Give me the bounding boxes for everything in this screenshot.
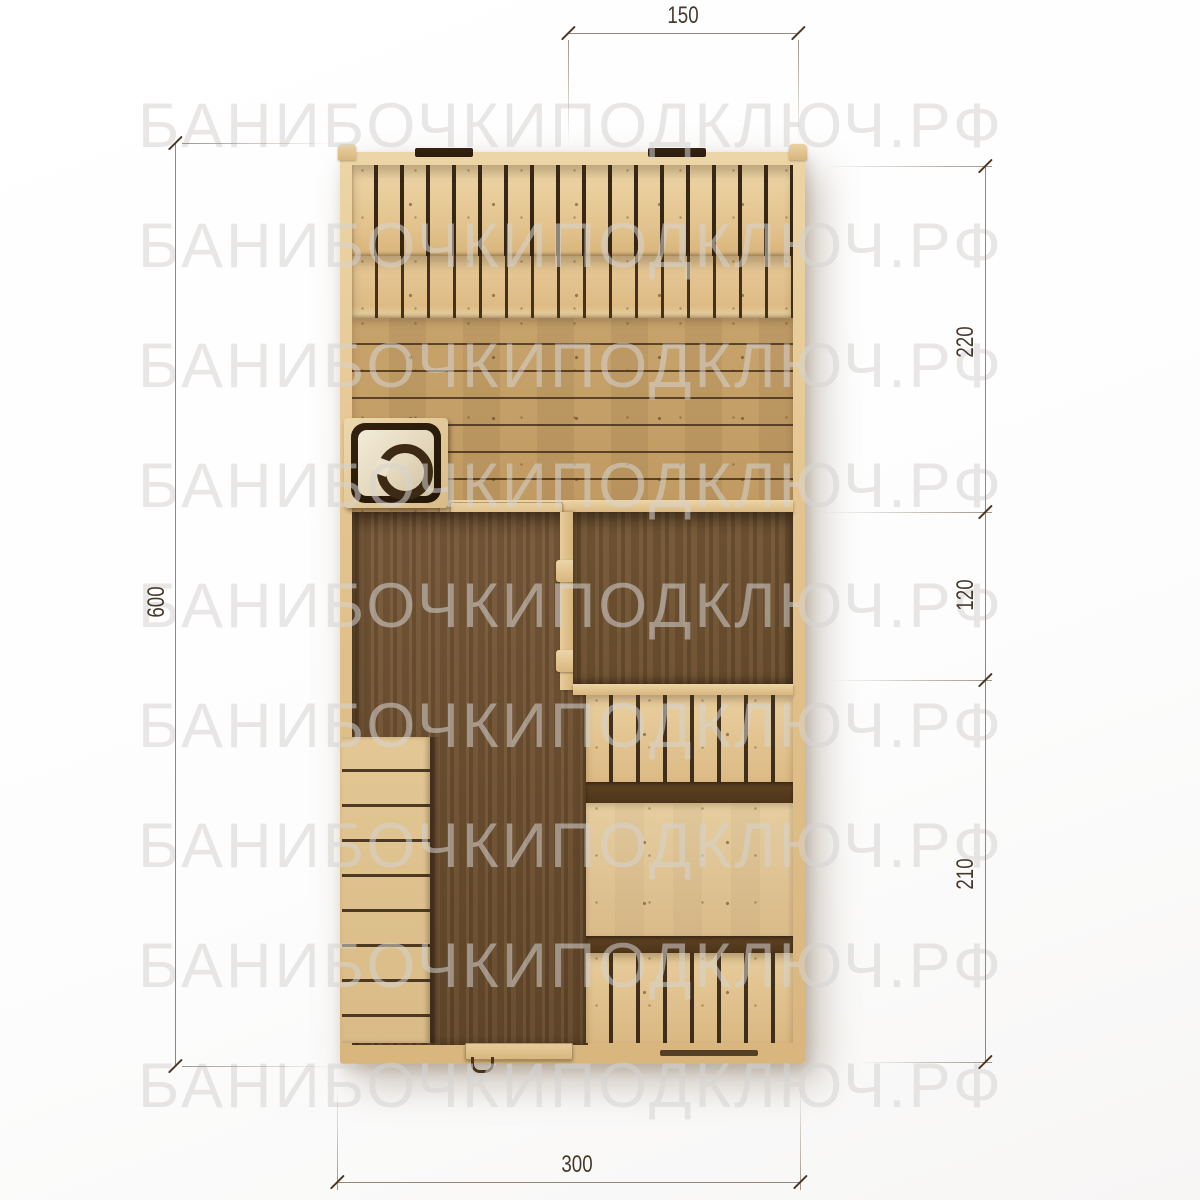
- dimension-value-right-upper: 220: [954, 307, 978, 377]
- dimension-tick: [330, 1175, 345, 1190]
- dimension-line-right: [985, 166, 986, 1062]
- lounge-room-floor: [573, 512, 793, 684]
- lounge-bench-edge: [573, 684, 793, 695]
- sauna-floor-plan: [340, 152, 805, 1064]
- extension-line: [800, 1085, 801, 1190]
- dimension-tick: [561, 26, 576, 41]
- extension-line: [337, 1085, 338, 1190]
- entrance-steps: [342, 737, 430, 1043]
- steps-shadow-edge: [430, 737, 440, 1043]
- stove-ring-opening: [373, 457, 392, 477]
- stove: [351, 423, 441, 503]
- dimension-tick: [168, 1059, 183, 1074]
- lounge-bench-bottom: [586, 953, 793, 1043]
- roof-vent-left: [415, 148, 473, 157]
- dimension-tick: [978, 159, 993, 174]
- dimension-value-right-lower: 210: [954, 839, 978, 909]
- lounge-table: [586, 803, 793, 936]
- steam-room-upper-bench: [352, 165, 793, 256]
- dimension-line-bottom: [337, 1182, 800, 1183]
- bench-gap-shadow: [586, 936, 793, 953]
- roof-vent-right: [648, 148, 706, 157]
- door-handle-icon: [471, 1057, 494, 1073]
- dimension-value-right-middle: 120: [954, 560, 978, 630]
- extension-line: [798, 40, 799, 143]
- dimension-tick: [793, 1175, 808, 1190]
- extension-line: [822, 166, 992, 167]
- bench-gap-shadow: [586, 782, 793, 803]
- dimension-tick: [978, 673, 993, 688]
- dimension-value-top: 150: [648, 4, 718, 28]
- watermark-text: БАНИБОЧКИПОДКЛЮЧ.РФ: [138, 1055, 1004, 1118]
- stove-heater-ring-icon: [377, 444, 433, 500]
- dimension-value-bottom: 300: [542, 1153, 612, 1177]
- door-threshold: [660, 1050, 758, 1056]
- dimension-line-left: [175, 143, 176, 1066]
- lounge-bench-top: [586, 695, 793, 782]
- wall-corner-tab-right: [789, 144, 807, 160]
- extension-line: [182, 143, 334, 144]
- stove-platform: [344, 418, 448, 508]
- extension-line: [182, 1066, 334, 1067]
- drawing-canvas: БАНИБОЧКИПОДКЛЮЧ.РФ БАНИБОЧКИПОДКЛЮЧ.РФ …: [0, 0, 1200, 1200]
- watermark-text: БАНИБОЧКИПОДКЛЮЧ.РФ: [138, 95, 1004, 158]
- dimension-tick: [168, 136, 183, 151]
- dimension-tick: [791, 26, 806, 41]
- stove-top-surface: [358, 430, 434, 496]
- wall-corner-tab-left: [338, 144, 356, 160]
- steam-room-lower-bench: [352, 256, 793, 318]
- extension-line: [822, 512, 992, 513]
- dimension-line-top: [568, 33, 798, 34]
- extension-line: [568, 40, 569, 145]
- dimension-value-left: 600: [145, 567, 169, 637]
- extension-line: [858, 1062, 992, 1063]
- extension-line: [830, 680, 992, 681]
- dimension-tick: [978, 1055, 993, 1070]
- dimension-tick: [978, 505, 993, 520]
